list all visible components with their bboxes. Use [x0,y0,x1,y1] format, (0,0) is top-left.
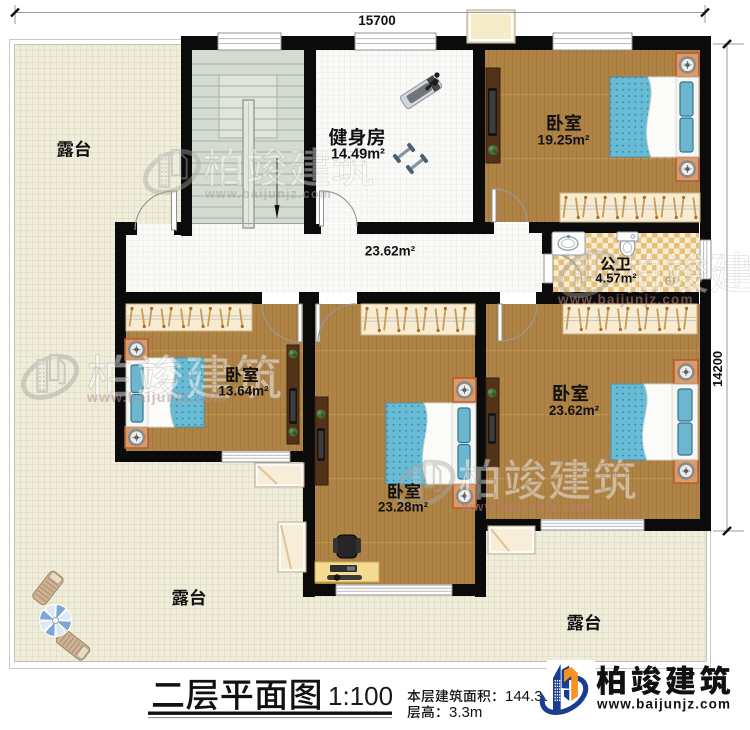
svg-text:23.28m²: 23.28m² [378,500,429,515]
svg-text:14200: 14200 [710,351,725,387]
svg-text:15700: 15700 [358,13,396,28]
svg-text:www.baijunjz.com: www.baijunjz.com [596,697,731,712]
svg-text:4.57m²: 4.57m² [595,271,637,286]
svg-text:19.25m²: 19.25m² [537,132,589,148]
svg-text:www.baijunjz.com: www.baijunjz.com [461,499,593,514]
svg-text:www.baijunjz.com: www.baijunjz.com [86,389,227,405]
svg-text:1:100: 1:100 [328,681,393,711]
svg-text:3.3m: 3.3m [449,704,482,721]
svg-text:23.62m²: 23.62m² [549,403,600,418]
svg-text:14.49m²: 14.49m² [331,147,385,163]
svg-text:23.62m²: 23.62m² [365,244,416,259]
svg-text:www.baijunjz.com: www.baijunjz.com [557,292,694,307]
svg-text:13.64m²: 13.64m² [218,384,269,399]
svg-text:www.baijunjz.com: www.baijunjz.com [204,187,332,201]
